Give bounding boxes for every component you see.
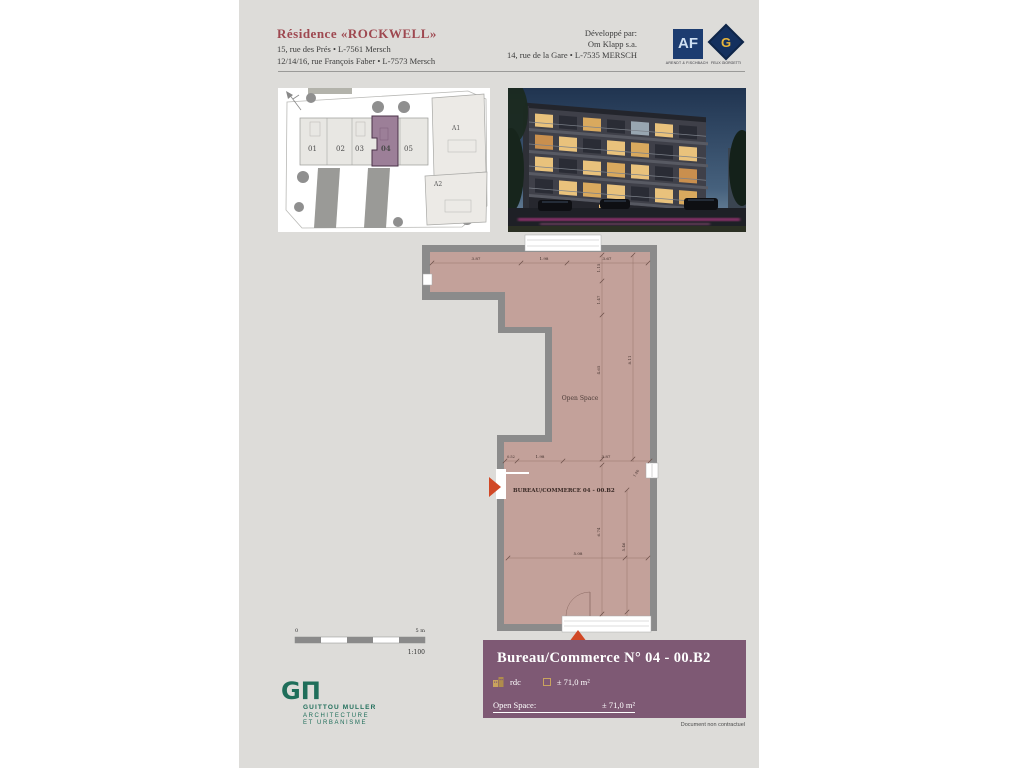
scale-zero: 0: [295, 628, 298, 634]
dim-label: 4.65: [596, 365, 601, 374]
site-plan: 01 02 03 04 05 A1 A2: [278, 88, 490, 232]
site-unit-label: 02: [336, 145, 345, 153]
dim-label: 5.08: [574, 551, 583, 556]
title-block: Bureau/Commerce N° 04 - 00.B2 rdc ± 71,0…: [483, 640, 746, 718]
document-page: Résidence «ROCKWELL» 15, rue des Prés • …: [239, 0, 759, 768]
dim-label: 1.98: [540, 256, 549, 261]
architect-name: GUITTOU MULLER: [303, 704, 376, 711]
dim-label: 1.47: [596, 295, 601, 304]
dim-label: 3.87: [472, 256, 481, 261]
architect-line2: ET URBANISME: [303, 720, 376, 726]
dim-label: 6.74: [596, 527, 601, 536]
open-space-row: Open Space: ± 71,0 m²: [493, 700, 635, 713]
unit-title: Bureau/Commerce N° 04 - 00.B2: [497, 650, 746, 667]
architect-monogram: GΠ: [281, 679, 376, 703]
site-unit-label: 01: [308, 145, 317, 153]
dim-label: 5.46: [621, 542, 626, 551]
dim-label: 3.87: [602, 454, 611, 459]
window-right: [646, 463, 658, 478]
building-icon: [493, 677, 504, 687]
dim-label: 3.67: [603, 256, 612, 261]
dim-label: 1.15: [596, 263, 601, 272]
dim-label: 0.52: [507, 455, 515, 459]
scale-ratio: 1:100: [408, 649, 425, 656]
site-building-label-a2: A2: [433, 181, 442, 188]
site-building-label-a1: A1: [451, 125, 460, 132]
dim-label: 1.98: [536, 454, 545, 459]
window-left: [423, 274, 432, 285]
room-label-open-space: Open Space: [562, 395, 599, 402]
window-top: [525, 235, 601, 251]
site-unit-label-highlighted: 04: [381, 144, 391, 153]
open-space-label: Open Space:: [493, 700, 536, 710]
site-unit-label: 03: [355, 145, 364, 153]
unit-label: BUREAU/COMMERCE 04 - 00.B2: [513, 488, 615, 494]
floor-plan: 3.87 1.98 3.67 1.15 1.47 4.65 8.11 0.52 …: [422, 235, 658, 642]
disclaimer: Document non contractuel: [681, 722, 745, 728]
scale-five: 5 m: [415, 628, 425, 634]
architect-logo: GΠ GUITTOU MULLER ARCHITECTURE ET URBANI…: [281, 679, 376, 726]
total-area: ± 71,0 m²: [557, 677, 590, 687]
scale-bar: 0 5 m 1:100: [295, 628, 425, 656]
site-unit-label: 05: [404, 145, 413, 153]
architect-line1: ARCHITECTURE: [303, 713, 376, 719]
area-icon: [543, 678, 551, 686]
open-space-area: ± 71,0 m²: [602, 700, 635, 710]
building-photo: [496, 80, 755, 232]
dim-label: 8.11: [627, 356, 632, 365]
floor-label: rdc: [510, 677, 521, 687]
